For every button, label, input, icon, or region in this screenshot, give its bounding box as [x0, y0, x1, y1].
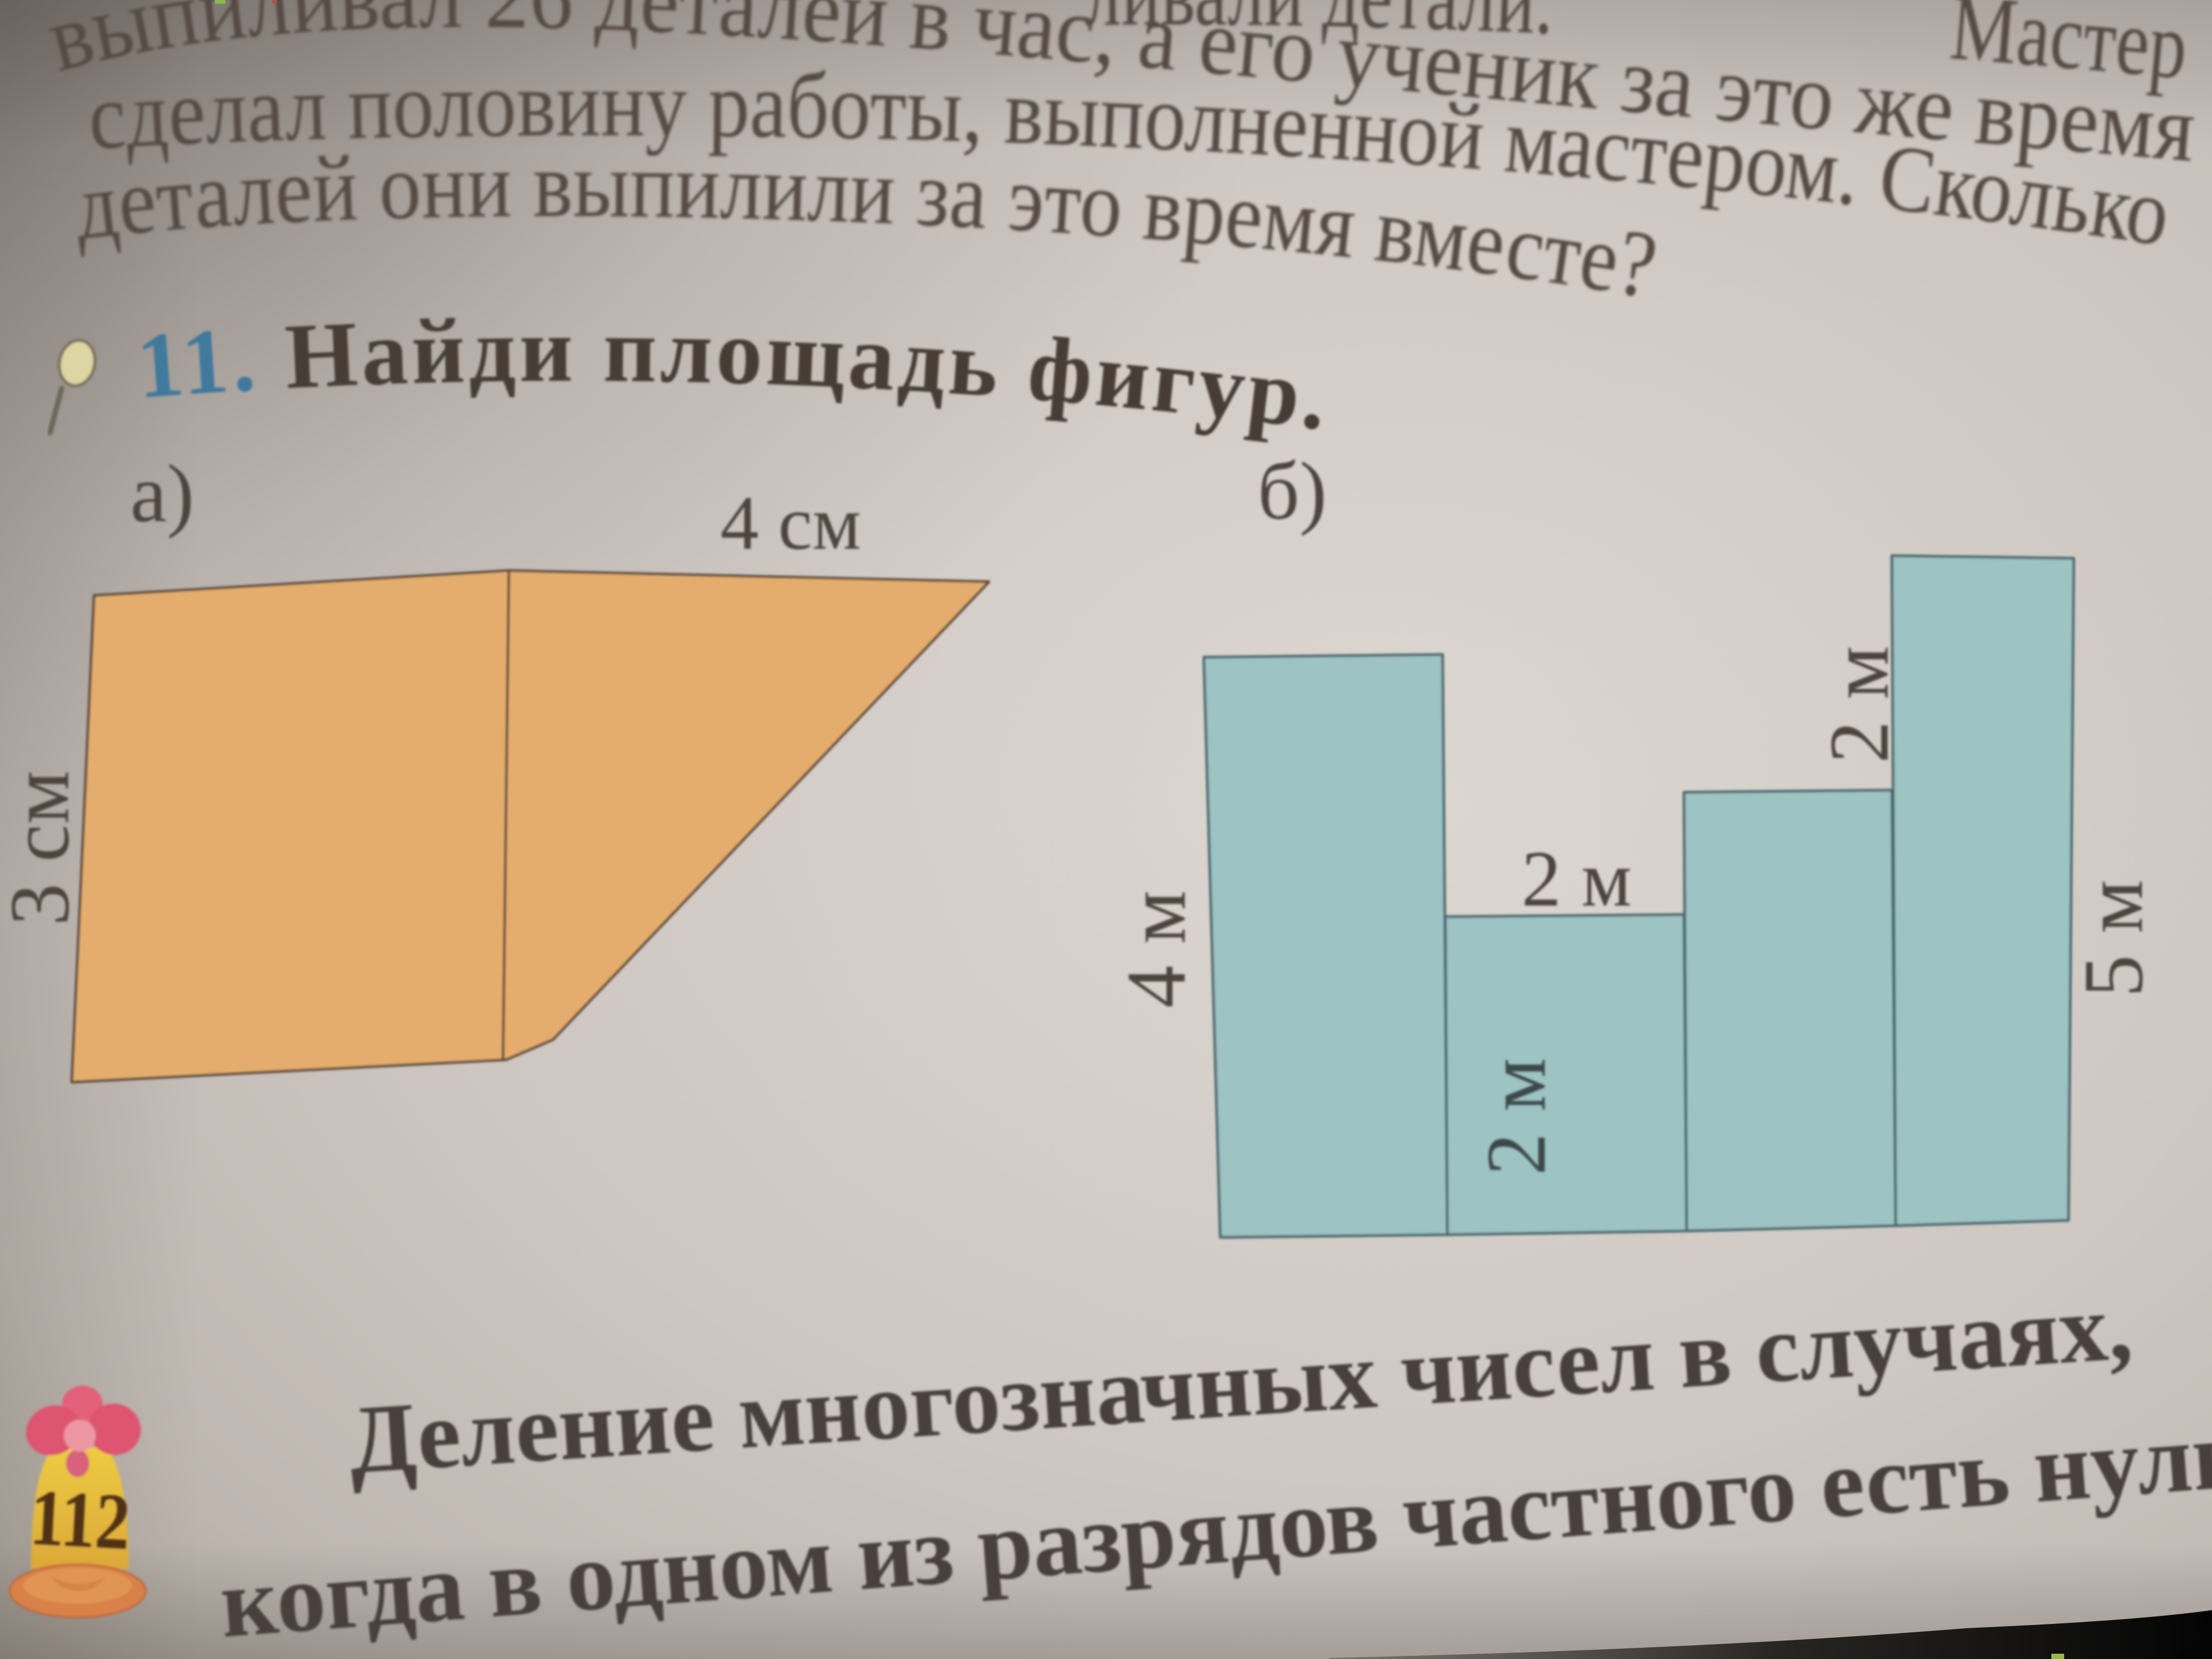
svg-text:б): б) [1258, 445, 1327, 537]
svg-text:5 м: 5 м [2066, 879, 2160, 997]
svg-text:4 м: 4 м [1109, 890, 1203, 1008]
svg-text:2 м: 2 м [1812, 646, 1906, 763]
svg-text:3 см: 3 см [0, 770, 87, 926]
svg-text:4 см: 4 см [720, 481, 861, 566]
svg-text:а): а) [130, 448, 194, 539]
svg-text:112: 112 [28, 1473, 132, 1566]
svg-text:2 м: 2 м [1521, 835, 1631, 923]
svg-text:2 м: 2 м [1469, 1058, 1563, 1175]
